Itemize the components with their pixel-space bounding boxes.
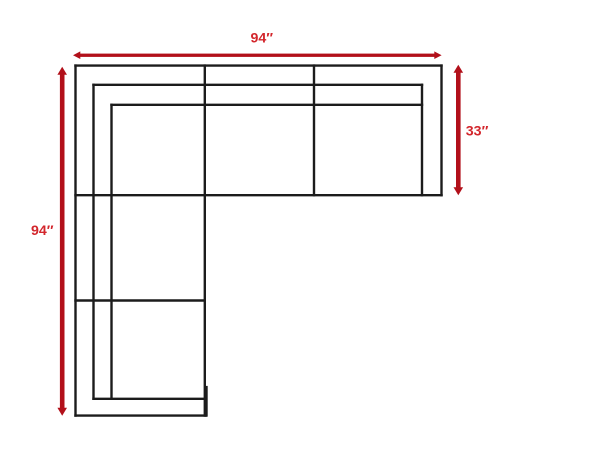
svg-text:94″: 94″ xyxy=(31,223,54,239)
svg-text:94″: 94″ xyxy=(251,30,274,46)
svg-text:33″: 33″ xyxy=(466,123,489,139)
